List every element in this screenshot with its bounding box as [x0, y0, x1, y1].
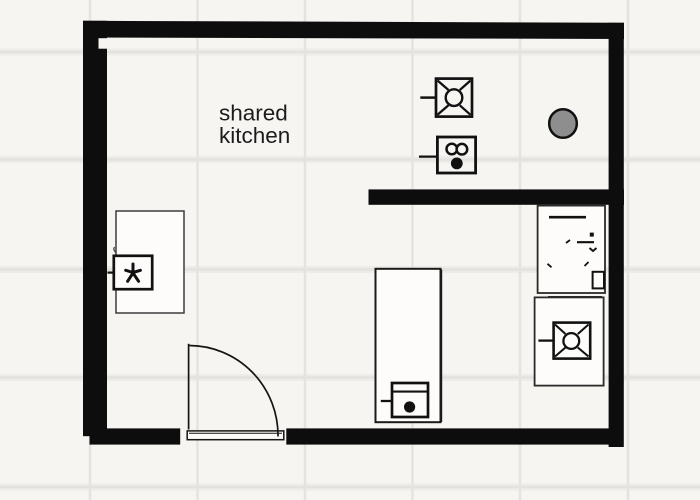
svg-text:shared: shared [219, 101, 288, 126]
svg-text:kitchen: kitchen [219, 123, 290, 148]
